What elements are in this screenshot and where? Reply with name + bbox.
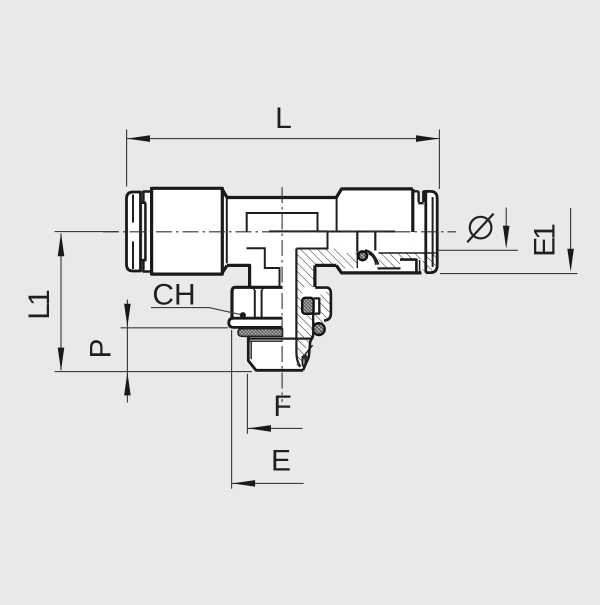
- svg-text:F: F: [273, 390, 291, 423]
- svg-text:CH: CH: [152, 279, 195, 312]
- svg-text:E: E: [271, 445, 291, 478]
- svg-text:L1: L1: [23, 290, 56, 320]
- svg-text:E1: E1: [528, 224, 561, 257]
- svg-text:P: P: [84, 338, 117, 358]
- svg-text:L: L: [275, 102, 292, 135]
